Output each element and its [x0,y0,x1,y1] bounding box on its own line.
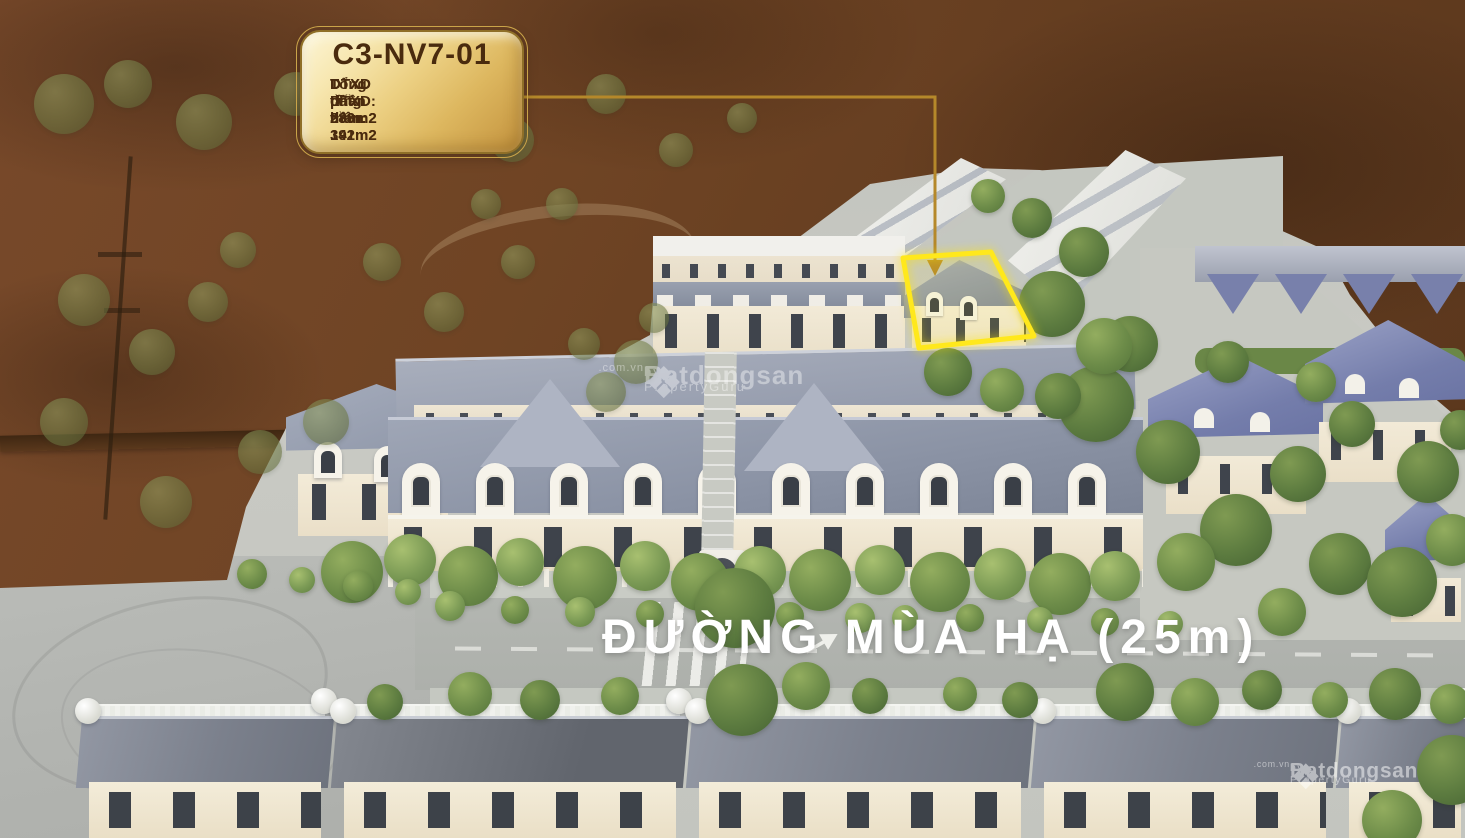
upper-floor-windows [653,256,905,284]
tree [237,559,267,589]
tree [1430,684,1465,724]
tree [546,188,578,220]
tree [1002,682,1038,718]
villa-unit [85,670,325,838]
tree [980,368,1024,412]
tree [910,552,970,612]
dormer-window [964,302,973,316]
roof-gable [744,383,884,471]
tree [1059,227,1109,277]
tree [659,133,693,167]
tree [448,672,492,716]
villa-roof [331,716,689,788]
dormer [550,463,588,515]
power-pole-crossarm [98,252,142,257]
villa-roof [76,716,334,788]
mansard-roof [653,282,905,308]
tree [1029,553,1091,615]
watermark-suffix: .com.vn [598,362,644,374]
tree [1312,682,1348,718]
tree [586,74,626,114]
tree [363,243,401,281]
tree [565,597,595,627]
tree [303,399,349,445]
dormer [624,463,662,515]
power-pole-crossarm [104,308,140,313]
dormer [926,292,943,316]
tree [129,329,175,375]
tree [1329,401,1375,447]
tree [289,567,315,593]
tree [1171,678,1219,726]
villa-facade [344,782,676,838]
tree [620,541,670,591]
tree [176,94,232,150]
tree [706,664,778,736]
watermark-suffix: .com.vn [1254,760,1290,770]
tree [1012,198,1052,238]
villa-facade [89,782,321,838]
townhouse-row [653,236,905,362]
watermark-byline: by PropertyGuru [1290,762,1372,786]
dormer-window [559,475,579,507]
tree [1136,420,1200,484]
lot-info-callout: C3-NV7-01 DT đất: 280m2 DTXD phần thân: … [300,30,524,154]
dormer [476,463,514,515]
tree [852,678,888,714]
tree [58,274,110,326]
tree [1157,533,1215,591]
dormer-window [633,475,653,507]
tree [343,571,373,601]
tree [1296,362,1336,402]
tree [520,680,560,720]
tree [367,684,403,720]
street-name-label: ĐƯỜNG MÙA HẠ (25m) [602,610,1260,665]
villa-facade [1044,782,1326,838]
tree [1035,373,1081,419]
tree [40,398,88,446]
dormer-window [411,475,431,507]
tree [1076,318,1132,374]
tree [496,538,544,586]
dormer [920,463,958,515]
tree [943,677,977,711]
dormer [1068,463,1106,515]
dormer-window [485,475,505,507]
dormer-row [388,463,1143,519]
tree [140,476,192,528]
tree [971,179,1005,213]
tree [789,549,851,611]
tree [974,548,1026,600]
tree [855,545,905,595]
tree [1207,341,1249,383]
tree [104,60,152,108]
tree [924,348,972,396]
dormer [846,463,884,515]
tree [727,103,757,133]
lot-code-title: C3-NV7-01 [302,38,522,72]
tree [1090,551,1140,601]
tree [1258,588,1306,636]
dormer-window [1003,475,1023,507]
tree [639,303,669,333]
tree [1367,547,1437,617]
dormer [402,463,440,515]
watermark-byline: by PropertyGuru [644,364,746,394]
tree [1096,663,1154,721]
dormer [1345,374,1365,394]
tree [34,74,94,134]
tree [1270,446,1326,502]
tree [188,282,228,322]
tree [1019,271,1085,337]
tree [471,189,501,219]
dormer-window [929,475,949,507]
roof-parapet [653,236,905,258]
tree [1397,441,1459,503]
villa-facade [699,782,1021,838]
roof-dome [330,698,356,724]
dormer [1250,412,1270,432]
dormer-window [855,475,875,507]
tree [586,372,626,412]
tree [568,328,600,360]
tree [782,662,830,710]
dormer [960,296,977,320]
dormer-window [321,451,335,473]
tree [1309,533,1371,595]
lot-total-area: Tổng DTXD: 533m2 [330,76,377,97]
dormer [1399,378,1419,398]
tree [395,579,421,605]
dormer-window [781,475,801,507]
tree [501,245,535,279]
roof-dome [75,698,101,724]
power-pole [103,156,132,519]
tree [1369,668,1421,720]
dormer [314,442,342,478]
tree [601,677,639,715]
dormer [1194,408,1214,428]
dormer [994,463,1032,515]
tree [1242,670,1282,710]
tree [238,430,282,474]
tree [220,232,256,268]
tree [501,596,529,624]
tree [424,292,464,332]
dormer [772,463,810,515]
dormer-window [1077,475,1097,507]
tree [435,591,465,621]
aerial-development-photo: ĐƯỜNG MÙA HẠ (25m) C3-NV7-01 DT đất: 280… [0,0,1465,838]
dormer-window [930,298,939,312]
